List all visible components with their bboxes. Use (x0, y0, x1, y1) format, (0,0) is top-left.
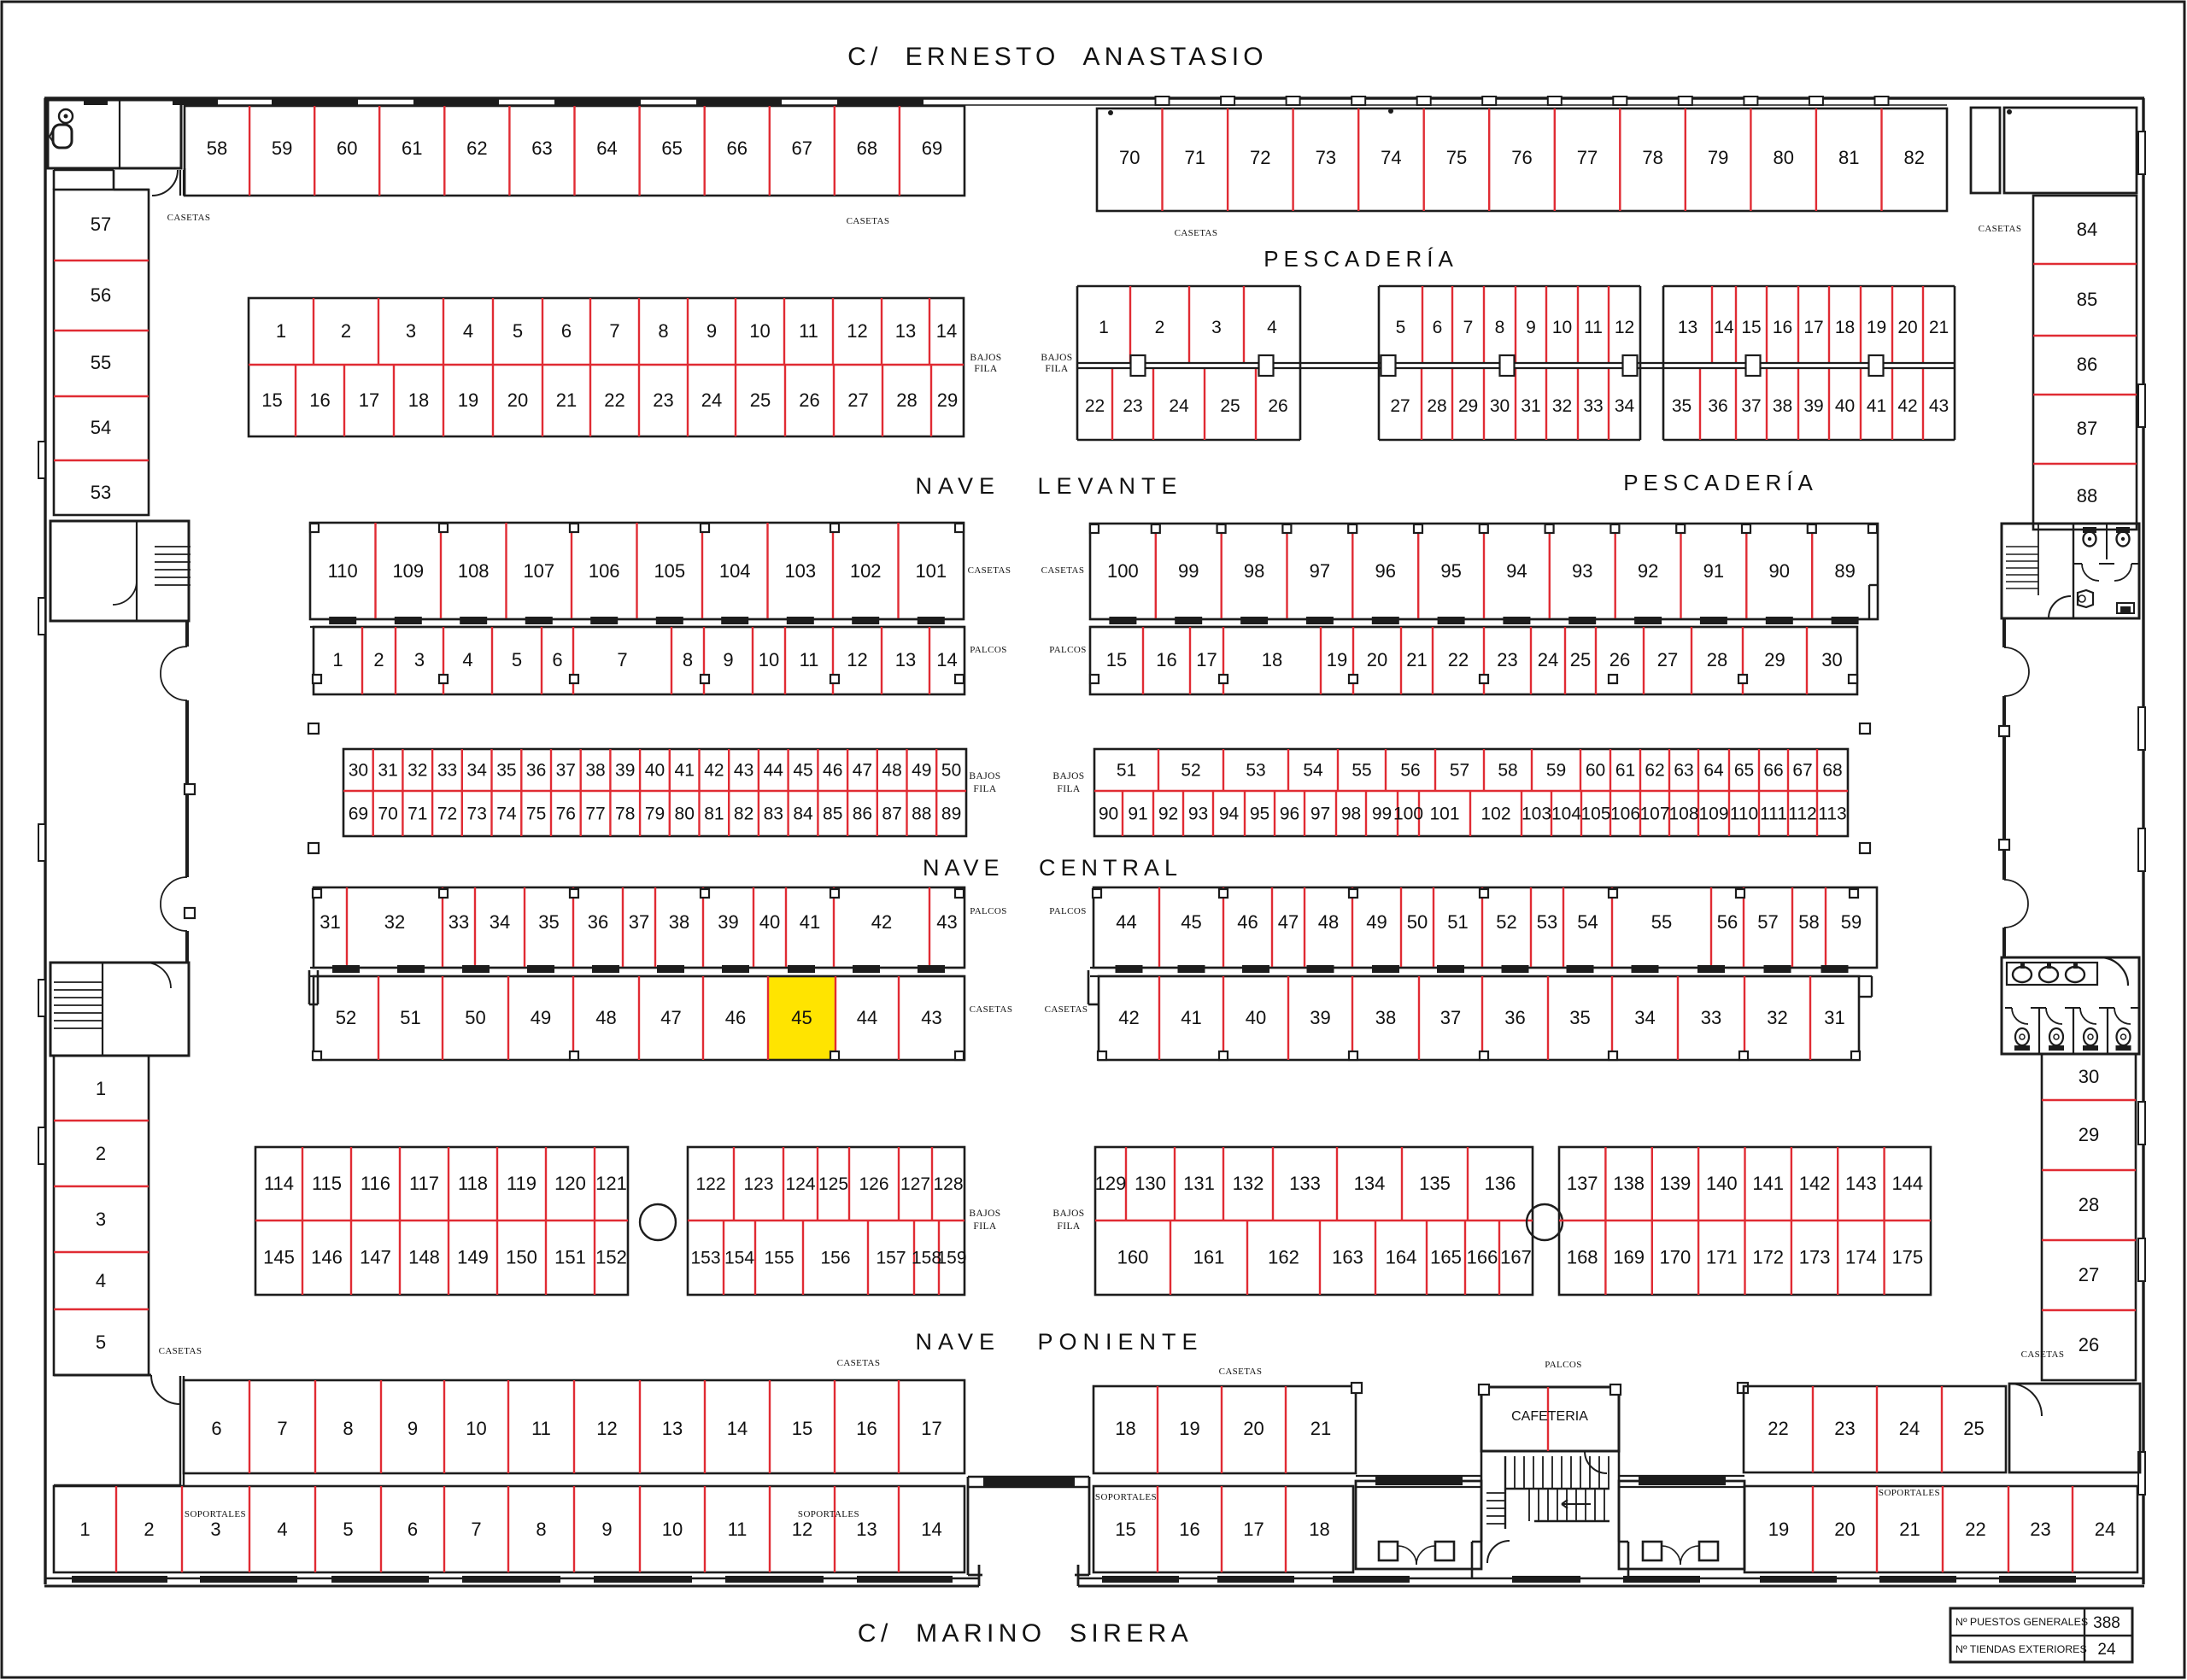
svg-text:38: 38 (585, 761, 605, 781)
svg-text:50: 50 (941, 761, 961, 781)
svg-text:162: 162 (1268, 1247, 1299, 1268)
svg-text:18: 18 (1309, 1519, 1329, 1540)
svg-text:80: 80 (675, 805, 695, 824)
svg-text:PESCADERÍA: PESCADERÍA (1623, 470, 1818, 495)
svg-text:102: 102 (850, 560, 882, 582)
svg-text:13: 13 (895, 649, 916, 670)
svg-text:36: 36 (1504, 1007, 1525, 1028)
svg-text:34: 34 (1634, 1007, 1655, 1028)
svg-text:171: 171 (1706, 1247, 1738, 1268)
svg-text:16: 16 (1179, 1519, 1199, 1540)
svg-text:Nº TIENDAS EXTERIORES: Nº TIENDAS EXTERIORES (1955, 1643, 2087, 1655)
svg-text:125: 125 (818, 1174, 848, 1194)
svg-text:33: 33 (1701, 1007, 1721, 1028)
svg-text:16: 16 (1156, 649, 1176, 670)
svg-text:105: 105 (1580, 805, 1610, 824)
svg-text:24: 24 (1538, 649, 1558, 670)
svg-text:36: 36 (1708, 396, 1727, 416)
svg-text:53: 53 (1537, 911, 1557, 933)
svg-text:97: 97 (1310, 805, 1330, 824)
svg-text:27: 27 (1390, 396, 1410, 416)
svg-text:106: 106 (1610, 805, 1640, 824)
svg-text:29: 29 (1458, 396, 1478, 416)
svg-text:58: 58 (1498, 761, 1517, 781)
svg-text:155: 155 (764, 1249, 794, 1268)
svg-text:57: 57 (91, 214, 111, 235)
svg-text:4: 4 (462, 649, 472, 670)
svg-text:SOPORTALES: SOPORTALES (1095, 1492, 1157, 1502)
svg-text:15: 15 (792, 1418, 812, 1439)
svg-text:170: 170 (1660, 1247, 1692, 1268)
svg-text:18: 18 (408, 389, 429, 411)
svg-text:28: 28 (1427, 396, 1446, 416)
svg-text:37: 37 (556, 761, 576, 781)
svg-text:28: 28 (1707, 649, 1727, 670)
svg-text:FILA: FILA (1057, 784, 1080, 794)
svg-text:51: 51 (1117, 761, 1136, 781)
svg-text:60: 60 (337, 138, 357, 159)
svg-text:23: 23 (1497, 649, 1517, 670)
svg-text:166: 166 (1467, 1247, 1498, 1268)
svg-text:44: 44 (764, 761, 784, 781)
svg-text:52: 52 (1181, 761, 1200, 781)
svg-text:2: 2 (144, 1519, 154, 1540)
svg-text:147: 147 (360, 1247, 391, 1268)
svg-text:145: 145 (263, 1247, 295, 1268)
svg-text:149: 149 (457, 1247, 489, 1268)
svg-text:152: 152 (595, 1247, 627, 1268)
svg-text:82: 82 (734, 805, 753, 824)
svg-text:50: 50 (465, 1007, 485, 1028)
svg-text:172: 172 (1752, 1247, 1784, 1268)
svg-text:114: 114 (264, 1173, 294, 1194)
svg-text:12: 12 (847, 649, 867, 670)
svg-text:37: 37 (629, 911, 649, 933)
svg-text:8: 8 (536, 1519, 546, 1540)
svg-text:10: 10 (749, 320, 770, 342)
svg-text:73: 73 (1316, 147, 1336, 168)
svg-text:157: 157 (876, 1249, 906, 1268)
svg-text:117: 117 (409, 1173, 439, 1194)
svg-text:31: 31 (1824, 1007, 1844, 1028)
svg-text:BAJOS: BAJOS (1041, 353, 1072, 363)
svg-text:21: 21 (1929, 318, 1949, 337)
svg-text:153: 153 (690, 1249, 720, 1268)
svg-text:31: 31 (1521, 396, 1540, 416)
svg-text:66: 66 (726, 138, 747, 159)
svg-text:154: 154 (724, 1249, 754, 1268)
svg-text:24: 24 (701, 389, 722, 411)
svg-text:99: 99 (1372, 805, 1392, 824)
svg-text:47: 47 (1278, 911, 1299, 933)
svg-text:43: 43 (921, 1007, 941, 1028)
svg-text:134: 134 (1354, 1173, 1386, 1194)
svg-text:25: 25 (1963, 1418, 1984, 1439)
svg-text:43: 43 (936, 911, 957, 933)
svg-text:38: 38 (1773, 396, 1792, 416)
svg-text:32: 32 (407, 761, 427, 781)
svg-text:6: 6 (1433, 318, 1443, 337)
svg-text:131: 131 (1183, 1173, 1215, 1194)
svg-text:2: 2 (96, 1143, 106, 1164)
svg-text:14: 14 (1714, 318, 1734, 337)
svg-text:10: 10 (759, 649, 779, 670)
svg-text:21: 21 (1310, 1418, 1331, 1439)
svg-text:27: 27 (1657, 649, 1678, 670)
svg-text:68: 68 (1822, 761, 1842, 781)
svg-text:34: 34 (1615, 396, 1635, 416)
svg-text:107: 107 (523, 560, 554, 582)
svg-text:57: 57 (1450, 761, 1469, 781)
svg-text:82: 82 (1903, 147, 1924, 168)
svg-text:96: 96 (1375, 560, 1396, 582)
svg-text:113: 113 (1818, 805, 1846, 824)
svg-text:38: 38 (669, 911, 689, 933)
svg-text:8: 8 (1495, 318, 1505, 337)
svg-text:4: 4 (96, 1270, 106, 1291)
svg-text:5: 5 (513, 320, 523, 342)
svg-text:55: 55 (1351, 761, 1371, 781)
svg-text:2: 2 (373, 649, 384, 670)
svg-text:PESCADERÍA: PESCADERÍA (1264, 246, 1458, 272)
svg-text:19: 19 (1179, 1418, 1199, 1439)
svg-text:59: 59 (1841, 911, 1862, 933)
svg-text:CASETAS: CASETAS (1219, 1367, 1263, 1377)
svg-text:59: 59 (272, 138, 292, 159)
svg-text:SOPORTALES: SOPORTALES (1879, 1488, 1940, 1498)
svg-text:89: 89 (1834, 560, 1855, 582)
svg-text:96: 96 (1280, 805, 1299, 824)
svg-text:BAJOS: BAJOS (969, 1209, 1000, 1219)
svg-text:27: 27 (2079, 1264, 2099, 1285)
svg-text:140: 140 (1706, 1173, 1738, 1194)
svg-text:79: 79 (645, 805, 665, 824)
svg-text:63: 63 (1674, 761, 1693, 781)
svg-text:11: 11 (800, 649, 819, 670)
svg-text:39: 39 (1310, 1007, 1330, 1028)
svg-text:32: 32 (1552, 396, 1572, 416)
svg-text:102: 102 (1480, 805, 1510, 824)
svg-text:11: 11 (531, 1418, 551, 1439)
svg-text:CASETAS: CASETAS (1979, 224, 2022, 234)
svg-text:81: 81 (704, 805, 724, 824)
svg-text:16: 16 (1773, 318, 1792, 337)
svg-text:156: 156 (820, 1249, 850, 1268)
svg-text:59: 59 (1546, 761, 1566, 781)
svg-text:9: 9 (1526, 318, 1536, 337)
svg-text:110: 110 (328, 560, 358, 582)
svg-text:69: 69 (349, 805, 368, 824)
svg-text:48: 48 (595, 1007, 616, 1028)
svg-text:13: 13 (1678, 318, 1697, 337)
svg-text:3: 3 (406, 320, 416, 342)
svg-text:41: 41 (1181, 1007, 1201, 1028)
svg-text:PALCOS: PALCOS (970, 906, 1007, 916)
svg-text:51: 51 (1447, 911, 1468, 933)
svg-text:71: 71 (1185, 147, 1205, 168)
svg-text:71: 71 (407, 805, 427, 824)
svg-text:24: 24 (2095, 1519, 2115, 1540)
svg-text:11: 11 (728, 1519, 748, 1540)
svg-text:78: 78 (1642, 147, 1662, 168)
svg-text:3: 3 (96, 1209, 106, 1230)
svg-text:19: 19 (1327, 649, 1347, 670)
svg-text:112: 112 (1788, 805, 1816, 824)
svg-text:41: 41 (1867, 396, 1886, 416)
svg-text:160: 160 (1117, 1247, 1149, 1268)
svg-text:21: 21 (1899, 1519, 1920, 1540)
svg-text:1: 1 (79, 1519, 90, 1540)
svg-text:2: 2 (341, 320, 351, 342)
svg-text:56: 56 (1400, 761, 1420, 781)
svg-text:17: 17 (359, 389, 379, 411)
svg-text:14: 14 (921, 1519, 941, 1540)
svg-text:39: 39 (1803, 396, 1823, 416)
svg-text:76: 76 (556, 805, 576, 824)
svg-text:6: 6 (211, 1418, 221, 1439)
svg-text:94: 94 (1506, 560, 1527, 582)
svg-text:CAFETERIA: CAFETERIA (1511, 1409, 1588, 1424)
svg-text:81: 81 (1838, 147, 1859, 168)
svg-text:53: 53 (1246, 761, 1265, 781)
svg-text:FILA: FILA (1057, 1221, 1080, 1232)
svg-text:17: 17 (1243, 1519, 1264, 1540)
svg-text:12: 12 (596, 1418, 617, 1439)
svg-text:22: 22 (1448, 649, 1469, 670)
svg-text:118: 118 (458, 1173, 488, 1194)
svg-text:13: 13 (662, 1418, 683, 1439)
svg-text:85: 85 (2077, 289, 2097, 310)
svg-text:93: 93 (1572, 560, 1592, 582)
svg-text:Nº PUESTOS GENERALES: Nº PUESTOS GENERALES (1955, 1616, 2088, 1628)
svg-text:17: 17 (921, 1418, 941, 1439)
svg-text:7: 7 (609, 320, 619, 342)
svg-text:35: 35 (538, 911, 559, 933)
svg-text:50: 50 (1407, 911, 1428, 933)
svg-text:95: 95 (1440, 560, 1461, 582)
svg-text:CASETAS: CASETAS (1041, 565, 1085, 576)
svg-text:17: 17 (1196, 649, 1217, 670)
svg-text:58: 58 (1798, 911, 1819, 933)
svg-text:97: 97 (1310, 560, 1330, 582)
svg-text:109: 109 (1698, 805, 1728, 824)
svg-text:13: 13 (895, 320, 916, 342)
svg-text:40: 40 (1835, 396, 1855, 416)
svg-text:52: 52 (1496, 911, 1516, 933)
svg-text:CASETAS: CASETAS (167, 213, 211, 223)
svg-text:PALCOS: PALCOS (1049, 906, 1087, 916)
svg-text:135: 135 (1419, 1173, 1451, 1194)
svg-text:64: 64 (596, 138, 617, 159)
svg-text:42: 42 (1897, 396, 1917, 416)
svg-text:25: 25 (750, 389, 771, 411)
svg-text:130: 130 (1135, 1173, 1166, 1194)
svg-text:129: 129 (1095, 1173, 1127, 1194)
svg-text:44: 44 (1116, 911, 1136, 933)
svg-text:CASETAS: CASETAS (968, 565, 1011, 576)
svg-text:103: 103 (1522, 805, 1551, 824)
svg-text:91: 91 (1703, 560, 1724, 582)
svg-text:23: 23 (653, 389, 673, 411)
svg-text:C/ MARINO SIRERA: C/ MARINO SIRERA (858, 1619, 1193, 1648)
svg-text:7: 7 (1463, 318, 1474, 337)
svg-text:77: 77 (585, 805, 605, 824)
svg-text:159: 159 (936, 1249, 966, 1268)
svg-text:165: 165 (1430, 1247, 1462, 1268)
svg-text:38: 38 (1375, 1007, 1396, 1028)
svg-text:24: 24 (2097, 1641, 2116, 1659)
svg-text:101: 101 (915, 560, 947, 582)
svg-text:61: 61 (402, 138, 422, 159)
svg-text:126: 126 (859, 1174, 888, 1194)
svg-text:138: 138 (1613, 1173, 1645, 1194)
svg-text:123: 123 (743, 1174, 773, 1194)
svg-text:173: 173 (1799, 1247, 1831, 1268)
svg-text:21: 21 (556, 389, 577, 411)
svg-text:132: 132 (1233, 1173, 1264, 1194)
svg-text:146: 146 (311, 1247, 343, 1268)
svg-text:164: 164 (1386, 1247, 1417, 1268)
svg-text:28: 28 (896, 389, 917, 411)
svg-text:15: 15 (1741, 318, 1761, 337)
svg-text:35: 35 (496, 761, 516, 781)
svg-text:100: 100 (1107, 560, 1139, 582)
svg-text:45: 45 (1181, 911, 1201, 933)
svg-text:168: 168 (1567, 1247, 1598, 1268)
svg-text:100: 100 (1393, 805, 1423, 824)
svg-text:43: 43 (734, 761, 753, 781)
svg-text:104: 104 (1551, 805, 1581, 824)
svg-text:124: 124 (785, 1174, 815, 1194)
svg-text:30: 30 (1490, 396, 1510, 416)
svg-text:167: 167 (1500, 1247, 1532, 1268)
svg-text:5: 5 (512, 649, 522, 670)
svg-text:95: 95 (1250, 805, 1269, 824)
svg-text:116: 116 (361, 1173, 390, 1194)
svg-text:6: 6 (552, 649, 562, 670)
svg-text:98: 98 (1244, 560, 1264, 582)
svg-text:30: 30 (2079, 1066, 2099, 1087)
svg-text:68: 68 (857, 138, 877, 159)
svg-text:163: 163 (1332, 1247, 1363, 1268)
svg-text:2: 2 (1155, 318, 1165, 337)
svg-text:90: 90 (1769, 560, 1790, 582)
svg-text:40: 40 (645, 761, 665, 781)
svg-text:7: 7 (471, 1519, 481, 1540)
svg-text:62: 62 (1645, 761, 1664, 781)
svg-text:75: 75 (526, 805, 546, 824)
svg-text:46: 46 (823, 761, 842, 781)
svg-text:20: 20 (1897, 318, 1917, 337)
svg-text:98: 98 (1341, 805, 1361, 824)
svg-text:22: 22 (1085, 396, 1105, 416)
svg-text:133: 133 (1289, 1173, 1321, 1194)
svg-text:FILA: FILA (973, 784, 996, 794)
svg-text:18: 18 (1115, 1418, 1135, 1439)
svg-text:39: 39 (615, 761, 635, 781)
svg-text:36: 36 (526, 761, 546, 781)
svg-text:92: 92 (1158, 805, 1178, 824)
svg-text:77: 77 (1577, 147, 1598, 168)
svg-text:23: 23 (1123, 396, 1142, 416)
svg-text:54: 54 (1577, 911, 1598, 933)
svg-text:40: 40 (759, 911, 780, 933)
svg-text:3: 3 (1211, 318, 1222, 337)
svg-text:29: 29 (1764, 649, 1785, 670)
svg-text:13: 13 (856, 1519, 877, 1540)
svg-text:12: 12 (847, 320, 867, 342)
svg-text:74: 74 (496, 805, 517, 824)
svg-text:15: 15 (261, 389, 282, 411)
svg-text:33: 33 (449, 911, 469, 933)
svg-text:84: 84 (793, 805, 813, 824)
svg-text:105: 105 (654, 560, 685, 582)
svg-text:33: 33 (437, 761, 457, 781)
svg-text:169: 169 (1613, 1247, 1645, 1268)
svg-text:CASETAS: CASETAS (837, 1358, 881, 1368)
svg-text:142: 142 (1799, 1173, 1831, 1194)
svg-text:11: 11 (1584, 318, 1603, 337)
svg-text:111: 111 (1760, 805, 1787, 824)
svg-text:56: 56 (91, 284, 111, 306)
svg-text:108: 108 (1668, 805, 1698, 824)
svg-text:65: 65 (661, 138, 682, 159)
svg-text:91: 91 (1128, 805, 1147, 824)
svg-text:C/ ERNESTO ANASTASIO: C/ ERNESTO ANASTASIO (847, 43, 1268, 71)
svg-text:CASETAS: CASETAS (847, 216, 890, 226)
svg-text:65: 65 (1734, 761, 1754, 781)
svg-text:5: 5 (96, 1332, 106, 1353)
svg-text:19: 19 (1867, 318, 1886, 337)
svg-text:151: 151 (554, 1247, 586, 1268)
svg-text:67: 67 (792, 138, 812, 159)
svg-text:175: 175 (1891, 1247, 1923, 1268)
svg-text:43: 43 (1929, 396, 1949, 416)
svg-text:89: 89 (941, 805, 961, 824)
svg-text:BAJOS: BAJOS (1052, 771, 1084, 781)
svg-text:40: 40 (1246, 1007, 1266, 1028)
svg-text:3: 3 (210, 1519, 220, 1540)
svg-text:119: 119 (507, 1173, 536, 1194)
svg-text:4: 4 (463, 320, 473, 342)
svg-text:16: 16 (309, 389, 330, 411)
svg-text:5: 5 (343, 1519, 353, 1540)
svg-text:54: 54 (1303, 761, 1323, 781)
svg-text:10: 10 (662, 1519, 683, 1540)
svg-text:41: 41 (675, 761, 695, 781)
svg-text:99: 99 (1178, 560, 1199, 582)
svg-text:87: 87 (2077, 418, 2097, 439)
svg-text:74: 74 (1381, 147, 1401, 168)
svg-text:109: 109 (392, 560, 424, 582)
svg-text:127: 127 (900, 1174, 930, 1194)
svg-text:26: 26 (1609, 649, 1630, 670)
svg-text:79: 79 (1708, 147, 1728, 168)
svg-text:12: 12 (1615, 318, 1634, 337)
svg-text:NAVE PONIENTE: NAVE PONIENTE (915, 1329, 1203, 1355)
svg-text:12: 12 (792, 1519, 812, 1540)
svg-text:58: 58 (207, 138, 227, 159)
svg-text:24: 24 (1169, 396, 1189, 416)
svg-text:9: 9 (723, 649, 733, 670)
svg-text:108: 108 (458, 560, 490, 582)
svg-text:14: 14 (936, 320, 957, 342)
svg-text:61: 61 (1615, 761, 1635, 781)
svg-text:34: 34 (467, 761, 488, 781)
svg-text:84: 84 (2077, 219, 2097, 240)
svg-text:55: 55 (1651, 911, 1672, 933)
svg-text:15: 15 (1115, 1519, 1135, 1540)
